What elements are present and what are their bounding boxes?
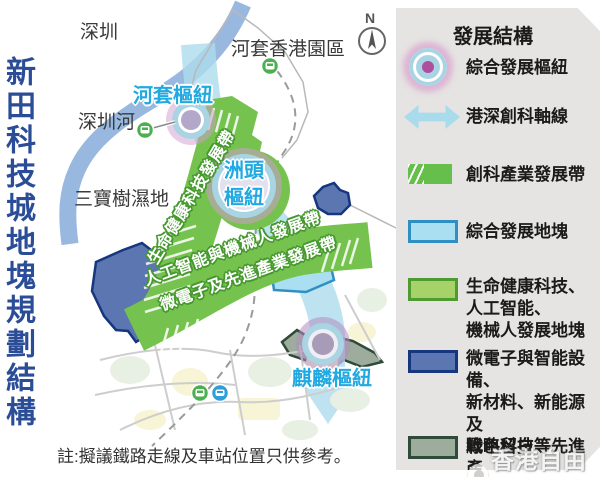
watermark: 香港自由行: [468, 441, 600, 477]
map-footnote: 註:擬議鐵路走線及車站位置只供參考。: [57, 442, 351, 467]
legend-item-hub: 綜合發展樞紐: [396, 46, 600, 90]
hub-label-zhoutou: 洲頭 樞紐: [216, 158, 272, 212]
light-green-swatch: [408, 278, 458, 301]
label-shenzhen-river: 深圳河: [78, 107, 135, 134]
legend-item-axis: 港深創科軸線: [396, 104, 600, 134]
legend-item-comprehensive: 綜合發展地塊: [396, 220, 600, 246]
legend-item-label: 港深創科軸線: [466, 106, 568, 128]
label-shenzhen: 深圳: [80, 17, 118, 44]
blue-swatch: [408, 220, 458, 243]
legend-item-label: 綜合發展樞紐: [466, 57, 568, 79]
navy-parcel-center: [314, 183, 350, 214]
hub-center-dot: [422, 61, 434, 73]
legend-item-belt: 創科產業發展帶: [396, 164, 600, 190]
label-sanbao-wetland: 三寶樹濕地: [74, 184, 169, 211]
legend-item-life-health: 生命健康科技、 人工智能、 機械人發展地塊: [396, 276, 600, 346]
infographic-canvas: 新田科技城地塊規劃結構: [0, 0, 600, 477]
double-arrow-icon: [404, 105, 460, 129]
legend-title: 發展結構: [396, 20, 590, 49]
qilin-hub-icon: [296, 317, 350, 371]
legend-item-microelectronics: 微電子與智能設備、 新材料、新能源及 綠色科技等先進產 業發展地塊: [396, 348, 600, 440]
hub-rings-icon: [409, 48, 447, 86]
legend-item-label: 創科產業發展帶: [466, 164, 585, 186]
station-icon-shenzhen-river: [137, 122, 154, 139]
gray-green-swatch: [408, 436, 458, 459]
legend-item-label: 綜合發展地塊: [466, 221, 568, 243]
station-icon-south-bus: [212, 385, 229, 402]
station-icon-south-rail: [192, 385, 209, 402]
compass-icon: [359, 28, 385, 54]
compass-n-label: N: [365, 10, 375, 26]
hub-label-qilin: 麒麟樞紐: [286, 366, 378, 393]
navy-swatch: [408, 350, 458, 373]
hatched-green-swatch: [408, 164, 452, 184]
watermark-text: 香港自由行: [491, 441, 600, 477]
hub-label-hetao: 河套樞紐: [130, 83, 216, 110]
legend-item-label: 生命健康科技、 人工智能、 機械人發展地塊: [466, 276, 585, 342]
label-hetao-park: 河套香港園區: [231, 34, 345, 61]
legend-panel: 發展結構 綜合發展樞紐 港深創科軸線 創科產業發展帶 綜合發展地塊 生命健康科技…: [396, 8, 600, 470]
watermark-logo-icon: [468, 464, 488, 477]
